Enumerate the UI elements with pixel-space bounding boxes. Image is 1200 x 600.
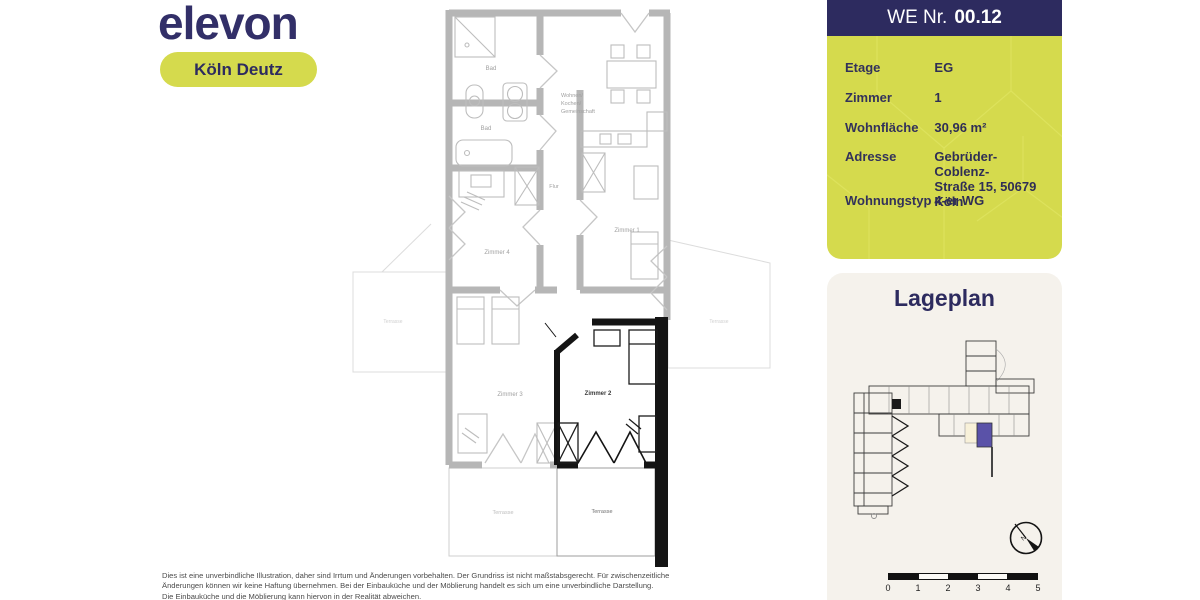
disclaimer-text: Dies ist eine unverbindliche Illustratio… (162, 571, 812, 600)
scale-bar (888, 573, 1038, 580)
label-terrace-right: Terrasse (709, 319, 728, 325)
room-label-zimmer-1: Zimmer 1 (614, 228, 640, 234)
scale-segment (889, 574, 918, 579)
room-label-zimmer-3: Zimmer 3 (497, 392, 523, 398)
unit-number: 00.12 (954, 7, 1002, 29)
siteplan-adjacent-unit (965, 423, 977, 443)
lageplan-title: Lageplan (827, 285, 1062, 312)
room-label-flur: Flur (549, 184, 559, 190)
detail-value: 30,96 m² (934, 120, 1045, 135)
scale-tick: 1 (915, 583, 920, 593)
room-label-living-3: Gemeinschaft (561, 109, 595, 115)
disclaimer-line-3: Die Einbauküche und die Möblierung kann … (162, 592, 812, 600)
scale-segment (949, 574, 978, 579)
label-terrace-left: Terrasse (383, 319, 402, 325)
scale-segment (1008, 574, 1037, 579)
disclaimer-line-1: Dies ist eine unverbindliche Illustratio… (162, 571, 812, 581)
siteplan-balconies (892, 416, 908, 496)
detail-label: Etage (845, 60, 934, 75)
detail-value: 1 (934, 90, 1045, 105)
detail-value: EG (934, 60, 1045, 75)
scale-tick: 2 (945, 583, 950, 593)
elevon-logo: elevon (158, 0, 298, 50)
compass-north-label: N (1020, 534, 1028, 543)
address-line-1: Gebrüder-Coblenz- (934, 149, 997, 179)
siteplan-drawing (844, 331, 1044, 519)
scale-tick: 0 (885, 583, 890, 593)
detail-value: 4-er WG (934, 193, 1045, 208)
detail-row-wohnflaeche: Wohnfläche 30,96 m² (845, 120, 1045, 135)
detail-row-zimmer: Zimmer 1 (845, 90, 1045, 105)
label-terrace-bottom-left: Terrasse (492, 510, 513, 516)
unit-panel-header: WE Nr. 00.12 (827, 0, 1062, 36)
floorplan-drawing: Bad Bad Wohnen/ Kochen/ Gemeinschaft Flu… (345, 0, 780, 570)
room-label-zimmer-4: Zimmer 4 (484, 250, 510, 256)
room-label-living-2: Kochen/ (561, 101, 582, 107)
detail-row-etage: Etage EG (845, 60, 1045, 75)
detail-label: Wohnfläche (845, 120, 934, 135)
unit-panel-body: Etage EG Zimmer 1 Wohnfläche 30,96 m² Ad… (827, 36, 1062, 259)
room-label-zimmer-2: Zimmer 2 (585, 391, 612, 397)
furniture-gray (455, 17, 667, 463)
disclaimer-line-2: Änderungen können wir keine Haftung über… (162, 581, 812, 591)
unit-info-panel: WE Nr. 00.12 Etage EG Zimmer 1 (827, 0, 1062, 259)
location-badge[interactable]: Köln Deutz (160, 52, 317, 87)
siteplan-stair-core (892, 399, 901, 409)
lageplan-card: Lageplan (827, 273, 1062, 600)
label-terrace-bottom-right: Terrasse (591, 509, 612, 515)
room-label-bad-bottom: Bad (481, 126, 492, 132)
scale-segment (918, 574, 949, 579)
unit-number-prefix: WE Nr. (887, 7, 947, 29)
siteplan-highlighted-unit (977, 423, 992, 447)
page: elevon Köln Deutz (0, 0, 1200, 600)
compass: N (1005, 517, 1047, 559)
highlighted-unit-walls (545, 317, 668, 567)
scale-tick: 5 (1035, 583, 1040, 593)
scale-tick: 4 (1005, 583, 1010, 593)
room-label-living-1: Wohnen/ (561, 93, 583, 99)
scale-segment (977, 574, 1008, 579)
detail-label: Zimmer (845, 90, 934, 105)
scale-tick: 3 (975, 583, 980, 593)
room-label-bad-top: Bad (486, 66, 497, 72)
detail-row-wohnungstyp: Wohnungstyp 4-er WG (845, 193, 1045, 208)
scale-tick-labels: 0 1 2 3 4 5 (827, 583, 1062, 595)
detail-label: Wohnungstyp (845, 193, 934, 208)
